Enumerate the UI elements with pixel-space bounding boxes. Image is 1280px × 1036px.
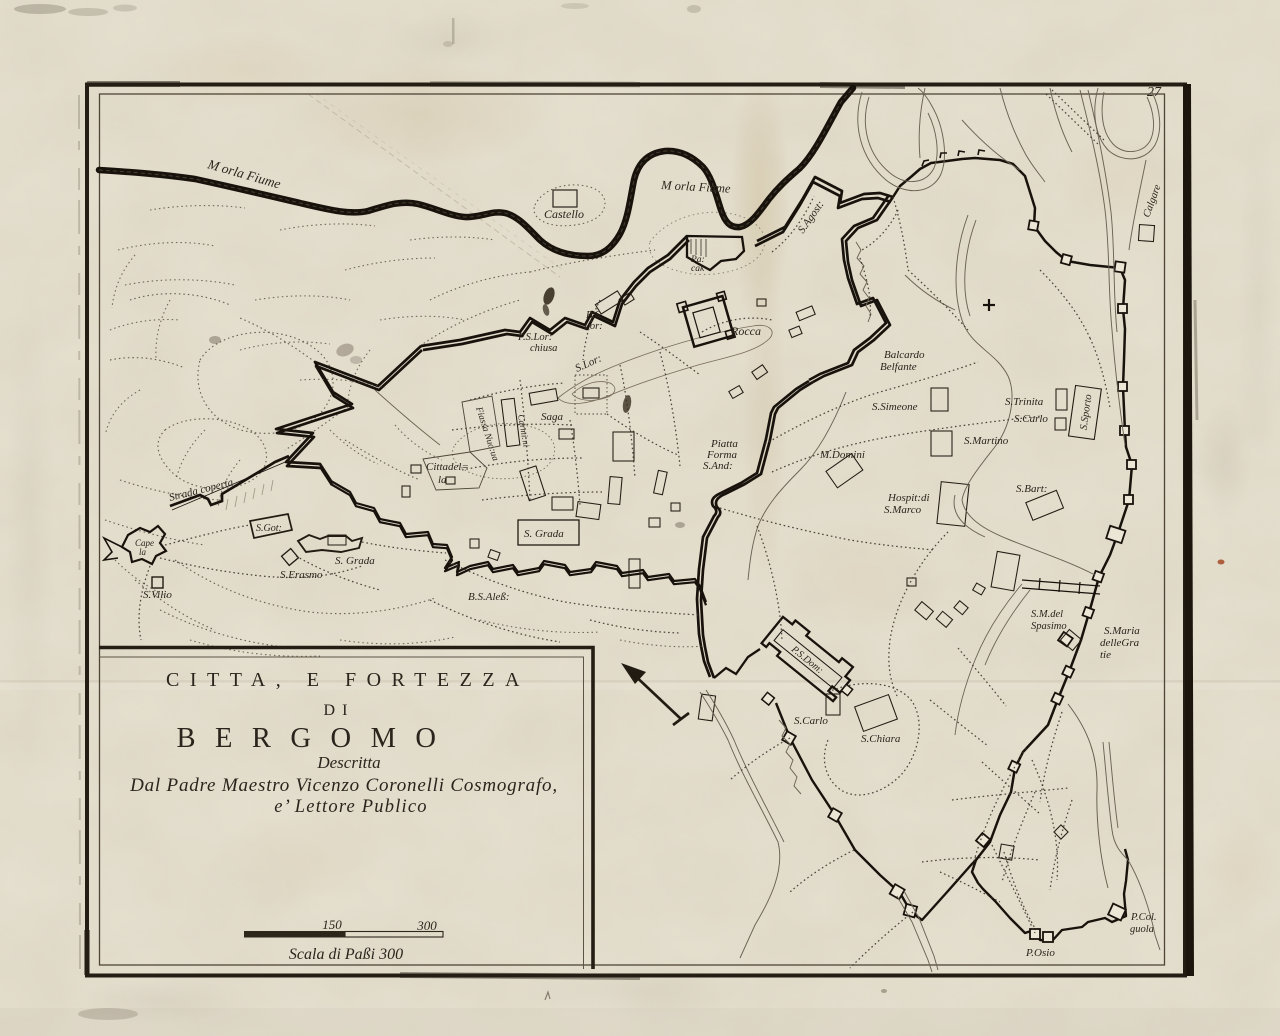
svg-text:BERGOMO: BERGOMO (176, 723, 455, 754)
svg-text:Saga: Saga (541, 411, 564, 423)
svg-text:S. Grada: S. Grada (524, 528, 564, 540)
svg-text:P.S.Lor:: P.S.Lor: (517, 332, 552, 343)
svg-text:DI: DI (324, 702, 355, 719)
svg-text:Scala di Paßi 300: Scala di Paßi 300 (289, 946, 403, 963)
svg-text:S.Chiara: S.Chiara (861, 733, 901, 745)
svg-text:S.Maria: S.Maria (1104, 625, 1140, 637)
svg-text:S. Grada: S. Grada (335, 555, 375, 567)
svg-text:chiusa: chiusa (530, 343, 557, 354)
svg-text:S.Vilio: S.Vilio (143, 589, 172, 601)
svg-text:Cittadel=: Cittadel= (426, 461, 469, 473)
svg-text:S.Carlo: S.Carlo (1014, 413, 1048, 425)
svg-text:Dal Padre Maestro Vicenzo Coro: Dal Padre Maestro Vicenzo Coronelli Cosm… (129, 775, 558, 796)
svg-text:Castello: Castello (544, 207, 584, 221)
svg-text:S.M.del: S.M.del (1031, 609, 1063, 620)
svg-text:guola: guola (1130, 924, 1154, 935)
svg-text:S.Martino: S.Martino (964, 435, 1009, 447)
svg-text:delleGra: delleGra (1100, 637, 1140, 649)
svg-text:Lor:: Lor: (583, 321, 603, 332)
svg-text:cak: cak (691, 264, 705, 274)
svg-text:S.Trinita: S.Trinita (1005, 396, 1044, 408)
svg-text:S.Got:: S.Got: (256, 523, 282, 534)
svg-text:CITTA, E FORTEZZA: CITTA, E FORTEZZA (166, 669, 530, 691)
svg-text:S.Marco: S.Marco (884, 504, 922, 516)
svg-text:150: 150 (322, 917, 342, 932)
svg-text:M.Domini: M.Domini (819, 449, 865, 461)
svg-text:P.Osio: P.Osio (1025, 947, 1055, 959)
svg-text:S.Carlo: S.Carlo (794, 715, 828, 727)
svg-text:Rocca: Rocca (730, 324, 761, 338)
svg-text:B.S.Aleß:: B.S.Aleß: (468, 591, 510, 603)
svg-text:Balcardo: Balcardo (884, 349, 925, 361)
svg-text:la: la (139, 547, 147, 557)
svg-text:tie: tie (1100, 649, 1111, 661)
svg-text:B.S: B.S (586, 310, 601, 321)
svg-text:300: 300 (416, 918, 437, 933)
svg-text:e’ Lettore Publico: e’ Lettore Publico (274, 797, 427, 817)
svg-text:S.Erasmo: S.Erasmo (280, 569, 323, 581)
svg-text:Hospit:di: Hospit:di (887, 492, 930, 504)
svg-text:S.And:: S.And: (703, 460, 733, 472)
svg-text:P.Col.: P.Col. (1130, 912, 1156, 923)
svg-text:Belfante: Belfante (880, 361, 917, 373)
svg-text:la: la (438, 474, 447, 486)
svg-text:Spasimo: Spasimo (1031, 621, 1067, 632)
svg-text:Descritta: Descritta (316, 753, 380, 772)
svg-text:S.Simeone: S.Simeone (872, 401, 918, 413)
svg-text:S.Bart:: S.Bart: (1016, 483, 1047, 495)
